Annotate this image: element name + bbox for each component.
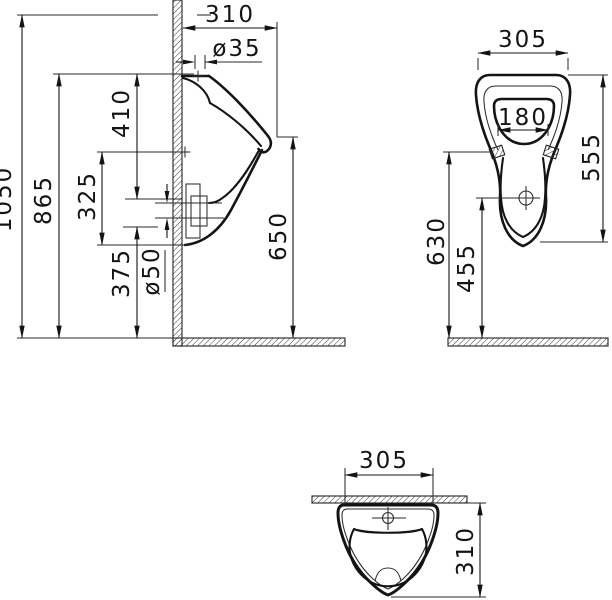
- dim-front-width: 305: [498, 27, 548, 53]
- dim-side-overall-height: 1050: [0, 166, 17, 233]
- top-inlet-center-mark: [372, 507, 406, 530]
- urinal-top-drain-dome: [375, 568, 401, 581]
- dim-front-body-height: 555: [579, 132, 605, 182]
- front-floor-hatch: [448, 338, 608, 346]
- front-view: 305 180 555 630 455: [424, 27, 608, 346]
- dim-side-inlet-diameter: ø35: [212, 36, 261, 62]
- side-view: 1050 865 410 325 375 ø50 650 310 ø35: [0, 0, 345, 346]
- wall-section-hatch: [173, 0, 182, 346]
- dim-top-width: 305: [359, 448, 409, 474]
- dim-side-inlet-to-outlet: 410: [109, 88, 135, 138]
- drain-fitting-inner: [191, 196, 207, 226]
- urinal-dimension-drawing: 1050 865 410 325 375 ø50 650 310 ø35: [0, 0, 612, 600]
- dim-front-bolt-height: 630: [424, 216, 450, 266]
- dim-side-rim-height: 865: [31, 175, 57, 225]
- dim-top-depth: 310: [453, 526, 479, 576]
- dim-front-drain-height: 455: [454, 243, 480, 293]
- dim-side-depth: 310: [205, 2, 255, 28]
- dim-front-opening-width: 180: [498, 105, 548, 131]
- dim-side-outlet-diameter: ø50: [139, 246, 165, 295]
- dim-side-front-edge-height: 650: [266, 211, 292, 261]
- urinal-top-basin: [350, 529, 427, 586]
- front-drain-center-mark: [512, 186, 540, 210]
- technical-drawing-page: 1050 865 410 325 375 ø50 650 310 ø35: [0, 0, 612, 600]
- inlet-center-mark: [193, 71, 204, 82]
- urinal-side-rim-outer: [209, 76, 268, 136]
- floor-section-hatch: [173, 338, 345, 346]
- urinal-front-outer-contour: [476, 75, 570, 246]
- dim-side-bolt-to-bottom: 325: [75, 171, 101, 221]
- urinal-side-bowl-inner: [209, 152, 258, 203]
- urinal-side-rim-bulge: [183, 78, 210, 103]
- top-view: 305 310: [312, 448, 486, 597]
- urinal-side-rim-inner: [210, 103, 261, 146]
- dim-side-bottom-to-floor: 375: [109, 248, 135, 298]
- drain-fitting-outer: [186, 184, 200, 238]
- top-wall-hatch: [312, 496, 467, 503]
